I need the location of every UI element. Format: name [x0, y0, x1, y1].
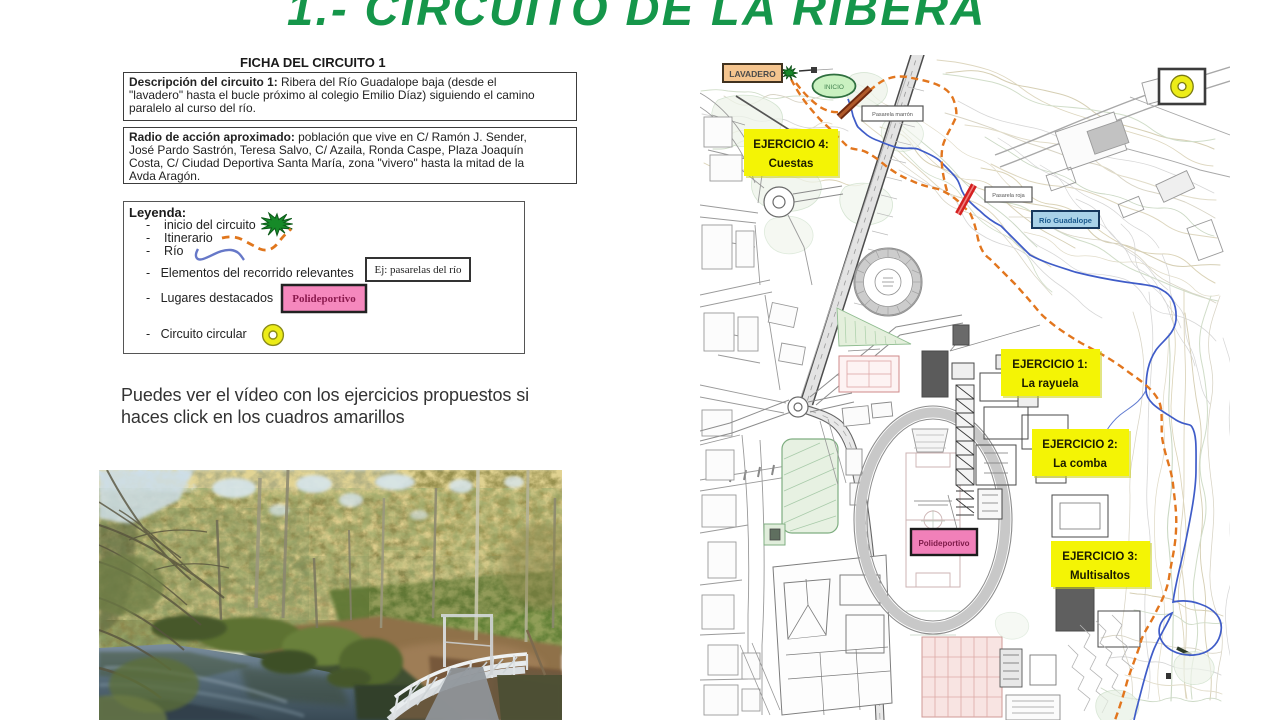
- svg-text:EJERCICIO 4:: EJERCICIO 4:: [753, 139, 828, 151]
- svg-text:LAVADERO: LAVADERO: [729, 69, 776, 79]
- svg-text:La comba: La comba: [1053, 458, 1107, 470]
- svg-text:EJERCICIO 2:: EJERCICIO 2:: [1042, 439, 1117, 451]
- svg-text:INICIO: INICIO: [824, 84, 844, 91]
- svg-text:Ej: pasarelas del río: Ej: pasarelas del río: [374, 264, 462, 276]
- svg-text:Pasarela roja: Pasarela roja: [992, 193, 1025, 199]
- svg-text:Multisaltos: Multisaltos: [1070, 570, 1130, 582]
- svg-text:Polideportivo: Polideportivo: [292, 293, 356, 305]
- svg-text:EJERCICIO 1:: EJERCICIO 1:: [1012, 359, 1087, 371]
- svg-text:Río Guadalope: Río Guadalope: [1039, 216, 1092, 225]
- svg-text:Polideportivo: Polideportivo: [918, 539, 969, 548]
- svg-text:Cuestas: Cuestas: [769, 158, 814, 170]
- svg-text:EJERCICIO 3:: EJERCICIO 3:: [1062, 551, 1137, 563]
- svg-text:La rayuela: La rayuela: [1022, 378, 1079, 390]
- svg-text:Pasarela marrón: Pasarela marrón: [872, 112, 913, 118]
